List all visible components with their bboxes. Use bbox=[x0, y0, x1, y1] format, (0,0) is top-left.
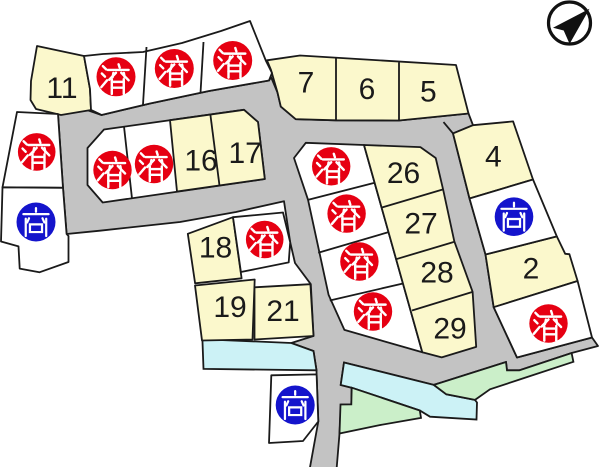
svg-text:16: 16 bbox=[184, 144, 217, 177]
svg-text:21: 21 bbox=[266, 295, 299, 328]
svg-text:26: 26 bbox=[387, 157, 420, 190]
svg-text:7: 7 bbox=[298, 67, 315, 100]
svg-text:11: 11 bbox=[46, 72, 77, 105]
svg-text:5: 5 bbox=[420, 76, 437, 109]
svg-text:29: 29 bbox=[433, 312, 466, 345]
svg-text:28: 28 bbox=[420, 257, 453, 290]
svg-text:2: 2 bbox=[523, 253, 540, 286]
svg-text:4: 4 bbox=[485, 141, 502, 174]
svg-text:19: 19 bbox=[213, 291, 246, 324]
svg-text:6: 6 bbox=[359, 73, 376, 106]
svg-text:27: 27 bbox=[404, 208, 437, 241]
svg-text:18: 18 bbox=[199, 232, 232, 265]
svg-text:17: 17 bbox=[229, 137, 262, 170]
